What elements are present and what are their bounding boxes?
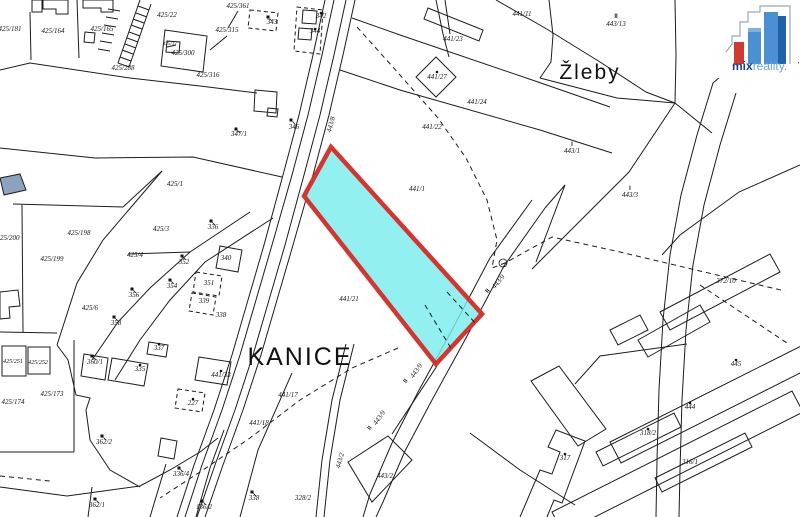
parcel-label: 443/3 bbox=[622, 191, 638, 199]
landuse-symbol bbox=[290, 119, 293, 122]
parcel-label: 425/174 bbox=[2, 398, 25, 406]
boundary-line bbox=[532, 103, 675, 269]
boundary-line bbox=[123, 171, 162, 207]
boundary-line bbox=[136, 13, 147, 17]
parcel-label: 425/22 bbox=[157, 11, 177, 19]
parcel-label: 441/21 bbox=[339, 295, 358, 303]
boundary-line bbox=[106, 17, 118, 19]
mid-building-top-icon bbox=[748, 28, 761, 32]
parcel-label: 340 bbox=[220, 254, 232, 262]
parcel-label: 347/1 bbox=[230, 130, 247, 138]
boundary-line bbox=[0, 476, 50, 481]
parcel-label: 338 bbox=[248, 494, 260, 502]
parcel-label: 136/2 bbox=[196, 503, 212, 511]
road-label: 443/9 bbox=[490, 273, 507, 291]
road-label: 443/2 bbox=[334, 451, 346, 469]
parcel-label: 356 bbox=[128, 291, 140, 299]
boundary-line bbox=[662, 165, 800, 255]
parcel-label: 441/24 bbox=[467, 98, 487, 106]
tall-building-icon bbox=[764, 12, 778, 64]
parcel-label: 425/173 bbox=[41, 390, 64, 398]
parcel-label: 362/1 bbox=[88, 501, 105, 509]
boundary-line bbox=[131, 25, 142, 29]
boundary-line bbox=[108, 9, 120, 11]
parcel-label: 358 bbox=[110, 319, 122, 327]
parcel-label: 441/33 bbox=[211, 371, 231, 379]
parcel-label: 425/165 bbox=[91, 25, 114, 33]
parcel-label: 425/4 bbox=[127, 251, 143, 259]
parcel-label: 441/22 bbox=[422, 123, 442, 131]
boundary-line bbox=[13, 204, 123, 207]
boundary-line bbox=[133, 19, 144, 23]
parcel-outline bbox=[32, 0, 42, 12]
parcel-label: 352 bbox=[178, 258, 190, 266]
boundary-line bbox=[125, 44, 136, 48]
roman-numeral-symbol: II bbox=[367, 425, 374, 431]
boundary-line bbox=[129, 32, 140, 36]
parcel-label: 335 bbox=[134, 365, 146, 373]
parcel-label: 441/23 bbox=[443, 35, 463, 43]
parcel-label: 346 bbox=[288, 123, 300, 131]
boundary-line bbox=[0, 148, 282, 177]
parcel-label: 336 bbox=[207, 223, 219, 231]
logo-mix-text: mix bbox=[732, 59, 753, 73]
parcel-outline bbox=[660, 254, 780, 330]
parcel-label: 441/1 bbox=[409, 185, 425, 193]
parcel-label: 443/13 bbox=[606, 20, 626, 28]
boundary-line bbox=[540, 0, 553, 78]
boundary-line bbox=[22, 205, 23, 332]
parcel-label: 336/4 bbox=[172, 470, 189, 478]
boundary-line bbox=[102, 33, 114, 35]
place-label: KANICE bbox=[247, 343, 352, 371]
parcel-outline bbox=[552, 391, 800, 517]
boundary-line bbox=[100, 41, 112, 43]
parcel-outline bbox=[84, 32, 95, 43]
parcel-label: 443/2 bbox=[377, 472, 393, 480]
parcel-label: 443/1 bbox=[564, 147, 580, 155]
boundary-line bbox=[122, 50, 133, 54]
parcel-label: 425/300 bbox=[172, 49, 195, 57]
boundary-line bbox=[98, 49, 110, 51]
parcel-label: 425/164 bbox=[42, 27, 65, 35]
parcel-label: 425/316 bbox=[197, 71, 220, 79]
parcel-outline bbox=[531, 366, 606, 446]
parcel-label: 344 bbox=[309, 27, 321, 35]
boundary-line bbox=[118, 0, 140, 63]
map-container[interactable]: IIIIIIIIII425/181425/164425/165425/22425… bbox=[0, 0, 800, 517]
parcel-outline bbox=[254, 90, 277, 113]
road-label: 443/9 bbox=[372, 409, 388, 427]
tall-building-shade-icon bbox=[778, 16, 786, 64]
boundary-line bbox=[675, 0, 676, 103]
parcel-label: 425/1 bbox=[167, 180, 183, 188]
parcel-label: 317 bbox=[559, 454, 571, 462]
cadastral-map-svg[interactable]: IIIIIIIIII425/181425/164425/165425/22425… bbox=[0, 0, 800, 517]
boundary-line bbox=[470, 433, 575, 505]
parcel-label: 441/17 bbox=[278, 391, 298, 399]
boundary-line bbox=[0, 438, 218, 496]
boundary-line bbox=[77, 0, 79, 58]
highlighted-parcel[interactable] bbox=[304, 147, 482, 364]
parcel-label: 425/200 bbox=[0, 234, 20, 242]
parcel-label: 351 bbox=[203, 279, 215, 287]
parcel-label: 318/2 bbox=[639, 429, 656, 437]
parcel-outline bbox=[610, 315, 648, 345]
parcel-label: 441/27 bbox=[427, 73, 447, 81]
parcel-label: 362/2 bbox=[95, 438, 112, 446]
parcel-label: 337 bbox=[153, 344, 165, 352]
parcel-outline bbox=[158, 438, 177, 459]
parcel-label: 425/181 bbox=[0, 25, 21, 33]
building-footprint bbox=[0, 174, 26, 195]
logo-wordmark: mixreality. bbox=[732, 60, 787, 72]
parcel-label: 425/6 bbox=[82, 304, 98, 312]
boundary-line bbox=[210, 36, 227, 50]
parcel-label: 425/3 bbox=[153, 225, 169, 233]
parcel-label: 227 bbox=[188, 399, 199, 407]
logo-reality-text: reality. bbox=[753, 59, 787, 73]
parcel-label: 441/11 bbox=[513, 10, 532, 18]
parcel-label: 444 bbox=[685, 403, 696, 411]
boundary-line bbox=[575, 344, 687, 384]
parcel-outline bbox=[43, 0, 68, 14]
parcel-label: 360/1 bbox=[86, 358, 103, 366]
parcel-label: 316/1 bbox=[681, 458, 698, 466]
road-label: 443/8 bbox=[325, 115, 337, 133]
boundary-line bbox=[675, 103, 712, 133]
boundary-line bbox=[700, 285, 790, 345]
parcel-label: 445 bbox=[731, 360, 742, 368]
parcel-label: 339 bbox=[198, 297, 210, 305]
road-label: 443/9 bbox=[409, 362, 425, 380]
place-label: Žleby bbox=[559, 61, 620, 84]
parcel-label: 425/252 bbox=[28, 359, 48, 366]
boundary-line bbox=[0, 332, 57, 333]
parcel-label: 425/361 bbox=[227, 2, 250, 10]
parcel-label: 441/18 bbox=[249, 419, 269, 427]
parcel-label: 425/17 bbox=[163, 42, 177, 47]
parcel-outline bbox=[83, 0, 113, 12]
boundary-line bbox=[138, 6, 149, 10]
mixreality-logo: mixreality. bbox=[718, 2, 798, 78]
parcel-label: 343 bbox=[266, 18, 278, 26]
boundary-line bbox=[120, 57, 131, 61]
parcel-label: 425/199 bbox=[41, 255, 64, 263]
parcel-label: 425/315 bbox=[216, 26, 239, 34]
roman-numeral-symbol: II bbox=[403, 378, 410, 384]
boundary-line bbox=[150, 464, 166, 517]
boundary-line bbox=[30, 12, 31, 60]
boundary-line bbox=[127, 38, 138, 42]
boundary-line bbox=[679, 93, 736, 517]
parcel-label: 425/251 bbox=[3, 358, 23, 365]
parcel-label: 425/288 bbox=[112, 64, 135, 72]
boundary-line bbox=[57, 171, 162, 345]
parcel-label: 372/10 bbox=[715, 277, 736, 285]
parcel-label: 338 bbox=[215, 311, 227, 319]
parcel-outline bbox=[302, 10, 317, 24]
parcel-label: 425/198 bbox=[68, 229, 91, 237]
parcel-label: 354 bbox=[166, 282, 178, 290]
parcel-outline bbox=[0, 290, 20, 319]
parcel-outline bbox=[348, 436, 412, 502]
parcel-label: 328/2 bbox=[294, 494, 311, 502]
boundary-line bbox=[57, 345, 140, 487]
parcel-label: 342 bbox=[315, 12, 327, 20]
